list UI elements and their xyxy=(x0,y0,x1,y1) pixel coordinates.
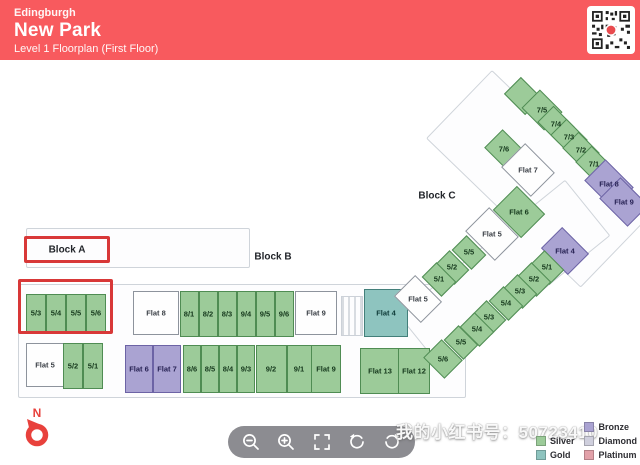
flat-cell[interactable] xyxy=(125,345,153,393)
legend-item: Platinum xyxy=(584,450,637,460)
legend-swatch-icon xyxy=(584,450,594,460)
block-a-label: Block A xyxy=(49,245,86,256)
legend-item: Bronze xyxy=(584,422,637,432)
flat-cell[interactable] xyxy=(199,291,218,337)
page-title: New Park xyxy=(14,20,626,42)
block-c-label: Block C xyxy=(418,191,455,202)
floorplan: Block A Block B Block C 5/35/45/55/6Flat… xyxy=(0,60,640,465)
legend-item: Diamond xyxy=(584,436,637,446)
flat-cell[interactable] xyxy=(26,343,64,387)
flat-cell[interactable] xyxy=(63,343,83,389)
legend-swatch-icon xyxy=(536,436,546,446)
flat-cell[interactable] xyxy=(201,345,219,393)
map-toolbar xyxy=(228,426,415,458)
zoom-in-button[interactable] xyxy=(275,431,297,453)
flat-cell[interactable] xyxy=(287,345,312,393)
compass-north-label: N xyxy=(33,406,42,420)
header-subtitle: Level 1 Floorplan (First Floor) xyxy=(14,42,626,57)
fullscreen-icon xyxy=(312,432,332,452)
flat-cell[interactable] xyxy=(256,291,275,337)
flat-cell[interactable] xyxy=(360,348,400,394)
qr-code-graphic xyxy=(589,8,633,52)
legend-item: Gold xyxy=(536,450,575,460)
flat-cell[interactable] xyxy=(275,291,294,337)
legend-column-2: BronzeDiamondPlatinum xyxy=(584,422,637,460)
compass-ring-icon xyxy=(29,427,46,444)
floorplan-viewer: { "header": { "city": "Edingburgh", "tit… xyxy=(0,0,640,465)
flat-cell[interactable] xyxy=(180,291,199,337)
legend-label: Platinum xyxy=(598,450,636,460)
flat-cell[interactable] xyxy=(237,345,255,393)
zoom-out-icon xyxy=(241,432,261,452)
flat-cell[interactable] xyxy=(256,345,287,393)
legend-label: Silver xyxy=(550,436,575,446)
flat-cell[interactable] xyxy=(237,291,256,337)
block-b-label: Block B xyxy=(254,252,291,263)
highlight-box-flats xyxy=(18,279,113,334)
zoom-in-icon xyxy=(276,432,296,452)
tier-legend: SilverGold BronzeDiamondPlatinum xyxy=(536,422,637,460)
flat-cell[interactable] xyxy=(219,345,237,393)
zoom-out-button[interactable] xyxy=(240,431,262,453)
rotate-ccw-icon xyxy=(347,432,367,452)
legend-item: Silver xyxy=(536,436,575,446)
flat-cell[interactable] xyxy=(218,291,237,337)
rotate-ccw-button[interactable] xyxy=(346,431,368,453)
legend-swatch-icon xyxy=(584,436,594,446)
flat-cell[interactable] xyxy=(295,291,337,335)
legend-swatch-icon xyxy=(584,422,594,432)
qr-code xyxy=(587,6,635,54)
legend-column-1: SilverGold xyxy=(536,436,575,460)
flat-cell[interactable] xyxy=(83,343,103,389)
flat-cell[interactable] xyxy=(311,345,341,393)
legend-label: Diamond xyxy=(598,436,637,446)
flat-cell[interactable] xyxy=(133,291,179,335)
compass: N xyxy=(18,404,54,459)
fullscreen-button[interactable] xyxy=(311,431,333,453)
flat-cell[interactable] xyxy=(153,345,181,393)
legend-label: Gold xyxy=(550,450,571,460)
stairwell xyxy=(341,296,363,336)
legend-swatch-icon xyxy=(536,450,546,460)
header-city: Edingburgh xyxy=(14,6,626,20)
header-bar: Edingburgh New Park Level 1 Floorplan (F… xyxy=(0,0,640,60)
legend-label: Bronze xyxy=(598,422,629,432)
flat-cell[interactable] xyxy=(183,345,201,393)
